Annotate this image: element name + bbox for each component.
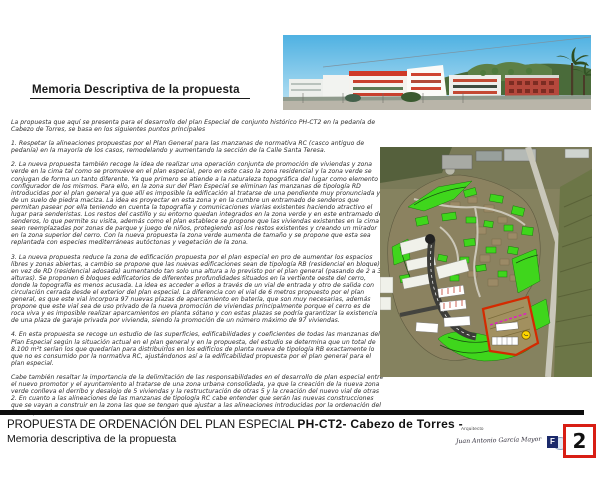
footer-subtitle: Memoria descriptiva de la propuesta xyxy=(7,433,176,445)
footer-title-code: PH-CT2- Cabezo de Torres - xyxy=(297,417,463,431)
paragraph-point-4: 4. En esta propuesta se recoge un estudi… xyxy=(11,331,385,366)
section-heading: Memoria Descriptiva de la propuesta xyxy=(30,84,250,99)
footer-divider xyxy=(0,410,584,415)
page-number-box: 2 xyxy=(563,424,596,458)
footer-title-main: PROPUESTA DE ORDENACIÓN DEL PLAN ESPECIA… xyxy=(7,419,294,431)
page-number: 2 xyxy=(573,429,587,453)
paragraph-point-2: 2. La nueva propuesta también recoge la … xyxy=(11,161,385,246)
site-plan-image xyxy=(380,147,592,377)
paragraph-intro: La propuesta que aquí se presenta para e… xyxy=(11,119,385,133)
memoria-body-text: La propuesta que aquí se presenta para e… xyxy=(11,119,385,423)
paragraph-point-3: 3. La nueva propuesta reduce la zona de … xyxy=(11,254,385,325)
logo-letter: F xyxy=(547,436,558,448)
panorama-photomontage xyxy=(283,35,591,110)
architect-signature: Juan Antonio García Mayor xyxy=(456,436,548,445)
architect-label: Arquitecto xyxy=(461,426,484,431)
aerial-site-plan xyxy=(380,147,592,377)
paragraph-point-1: 1. Respetar la alineaciones propuestas p… xyxy=(11,140,385,154)
document-page: Memoria Descriptiva de la propuesta La p… xyxy=(0,0,609,487)
footer-title: PROPUESTA DE ORDENACIÓN DEL PLAN ESPECIA… xyxy=(7,417,457,431)
panorama-image xyxy=(283,35,591,110)
